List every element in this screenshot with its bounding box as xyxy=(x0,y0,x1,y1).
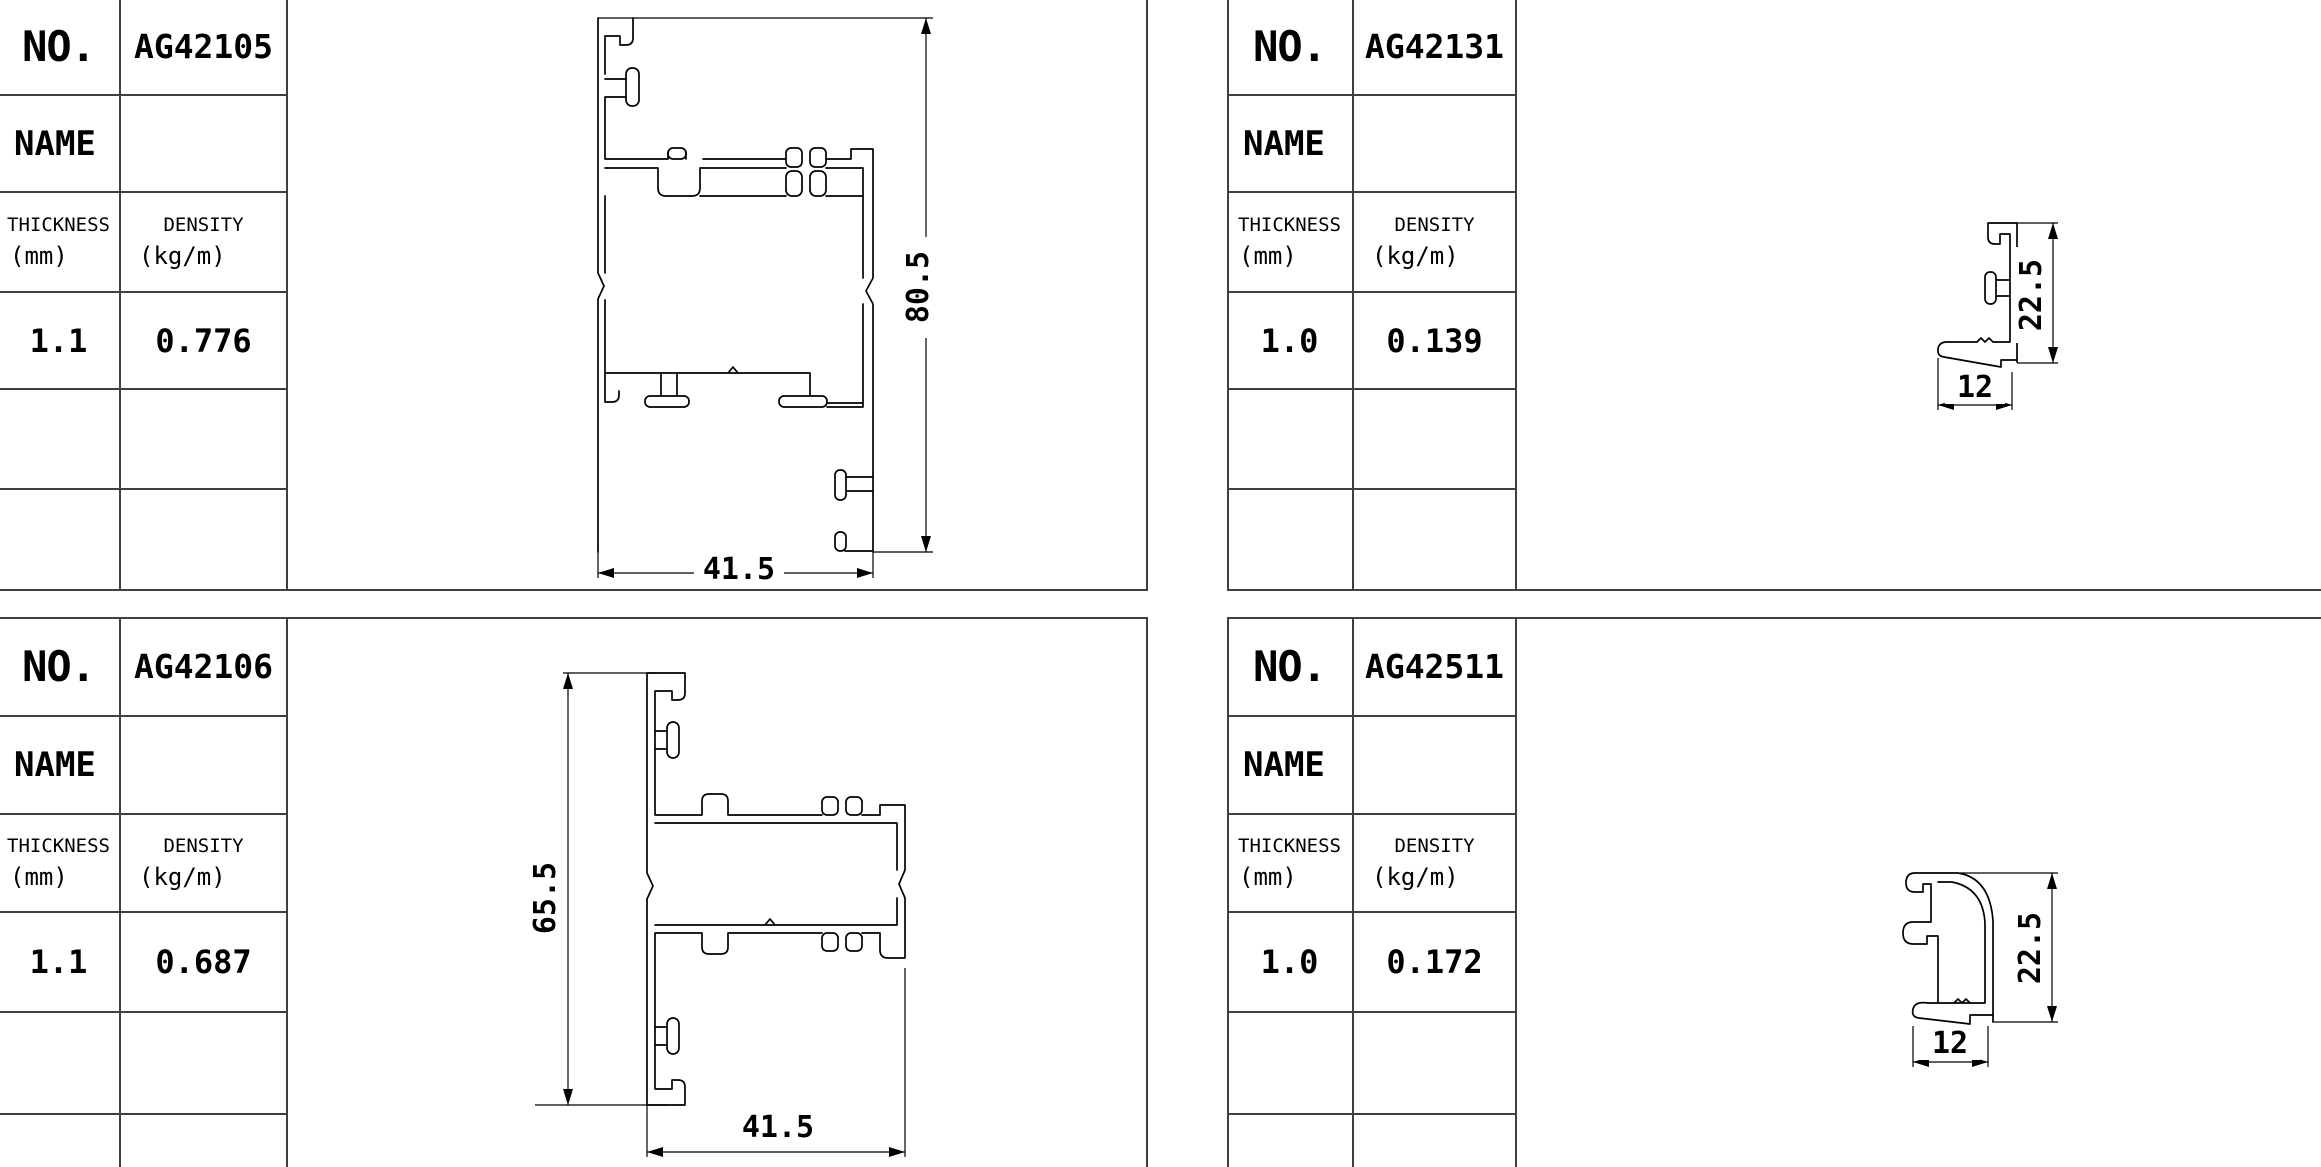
dim-width-ag42511: 12 xyxy=(1920,1028,1980,1060)
thickness-value: 1.1 xyxy=(0,913,121,1013)
table-row xyxy=(0,1115,288,1167)
thickness-unit: (mm) xyxy=(1227,242,1352,270)
thickness-unit: (mm) xyxy=(1227,863,1352,891)
empty-cell xyxy=(121,390,288,490)
profile-code: AG42106 xyxy=(121,617,288,717)
empty-cell xyxy=(121,1013,288,1115)
empty-cell xyxy=(121,490,288,591)
profile-hook xyxy=(626,68,639,106)
empty-cell xyxy=(1354,1115,1517,1167)
empty-cell xyxy=(1227,390,1354,490)
no-label: NO. xyxy=(0,0,121,96)
spec-table-ag42105: NO. AG42105 NAME THICKNESS (mm) DENSITY … xyxy=(0,0,288,591)
profile-hook xyxy=(835,532,846,551)
profile-code: AG42511 xyxy=(1354,617,1517,717)
table-row: THICKNESS (mm) DENSITY (kg/m) xyxy=(0,815,288,913)
name-label: NAME xyxy=(1227,717,1354,815)
table-row xyxy=(1227,1013,1517,1115)
table-row: NO. AG42511 xyxy=(1227,617,1517,717)
profile-drawing-ag42105 xyxy=(560,0,960,600)
dimension-arrow xyxy=(563,673,905,1157)
no-label: NO. xyxy=(0,617,121,717)
table-row: 1.1 0.776 xyxy=(0,293,288,390)
density-header: DENSITY (kg/m) xyxy=(1354,815,1517,913)
profile-hook xyxy=(786,148,802,167)
empty-cell xyxy=(1354,490,1517,591)
no-label: NO. xyxy=(1227,617,1354,717)
table-row: NAME xyxy=(1227,96,1517,193)
table-row: NO. AG42131 xyxy=(1227,0,1517,96)
profile-catalog-sheet: NO. AG42105 NAME THICKNESS (mm) DENSITY … xyxy=(0,0,2321,1167)
dim-height-ag42106: 65.5 xyxy=(530,850,562,946)
thickness-label: THICKNESS xyxy=(1227,214,1352,236)
empty-cell xyxy=(0,390,121,490)
empty-cell xyxy=(1227,1115,1354,1167)
table-row: 1.0 0.172 xyxy=(1227,913,1517,1013)
density-label: DENSITY xyxy=(121,835,286,857)
profile-code: AG42105 xyxy=(121,0,288,96)
profile-hook xyxy=(667,722,679,758)
thickness-label: THICKNESS xyxy=(0,835,119,857)
name-label: NAME xyxy=(1227,96,1354,193)
dim-width-ag42105: 41.5 xyxy=(694,554,784,586)
profile-hook xyxy=(667,1018,679,1054)
profile-outline xyxy=(1938,223,2017,367)
name-label: NAME xyxy=(0,96,121,193)
profile-hook xyxy=(835,470,846,500)
table-row: NO. AG42105 xyxy=(0,0,288,96)
density-unit: (kg/m) xyxy=(1354,242,1515,270)
table-row: THICKNESS (mm) DENSITY (kg/m) xyxy=(0,193,288,293)
thickness-label: THICKNESS xyxy=(0,214,119,236)
name-label: NAME xyxy=(0,717,121,815)
density-value: 0.687 xyxy=(121,913,288,1013)
empty-cell xyxy=(121,1115,288,1167)
thickness-unit: (mm) xyxy=(0,863,119,891)
thickness-label: THICKNESS xyxy=(1227,835,1352,857)
empty-cell xyxy=(1354,1013,1517,1115)
thickness-header: THICKNESS (mm) xyxy=(1227,193,1354,293)
empty-cell xyxy=(1227,1013,1354,1115)
name-value xyxy=(1354,717,1517,815)
dimension-lines xyxy=(535,673,905,1157)
density-header: DENSITY (kg/m) xyxy=(121,815,288,913)
profile-hook xyxy=(810,148,826,167)
empty-cell xyxy=(0,1115,121,1167)
profile-hook xyxy=(668,148,686,159)
dim-width-ag42131: 12 xyxy=(1945,372,2005,404)
table-row xyxy=(1227,390,1517,490)
empty-cell xyxy=(0,490,121,591)
table-row: THICKNESS (mm) DENSITY (kg/m) xyxy=(1227,815,1517,913)
table-row: THICKNESS (mm) DENSITY (kg/m) xyxy=(1227,193,1517,293)
profile-hook xyxy=(846,933,862,951)
table-row: NAME xyxy=(0,96,288,193)
thickness-value: 1.0 xyxy=(1227,293,1354,390)
profile-hook xyxy=(779,396,827,407)
density-label: DENSITY xyxy=(1354,214,1515,236)
table-row: 1.0 0.139 xyxy=(1227,293,1517,390)
table-row: NO. AG42106 xyxy=(0,617,288,717)
density-value: 0.172 xyxy=(1354,913,1517,1013)
density-label: DENSITY xyxy=(1354,835,1515,857)
empty-cell xyxy=(0,1013,121,1115)
density-unit: (kg/m) xyxy=(121,863,286,891)
table-row: NAME xyxy=(0,717,288,815)
density-unit: (kg/m) xyxy=(1354,863,1515,891)
profile-hook xyxy=(822,797,838,815)
density-header: DENSITY (kg/m) xyxy=(1354,193,1517,293)
dim-height-ag42511: 22.5 xyxy=(2015,900,2047,996)
thickness-unit: (mm) xyxy=(0,242,119,270)
no-label: NO. xyxy=(1227,0,1354,96)
thickness-header: THICKNESS (mm) xyxy=(0,193,121,293)
profile-hook xyxy=(810,171,826,196)
profile-hook xyxy=(1985,272,1996,304)
name-value xyxy=(121,96,288,193)
thickness-header: THICKNESS (mm) xyxy=(0,815,121,913)
table-row xyxy=(0,490,288,591)
name-value xyxy=(121,717,288,815)
profile-hook xyxy=(822,933,838,951)
profile-hook xyxy=(786,171,802,196)
density-header: DENSITY (kg/m) xyxy=(121,193,288,293)
profile-hook xyxy=(645,396,689,407)
density-label: DENSITY xyxy=(121,214,286,236)
name-value xyxy=(1354,96,1517,193)
empty-cell xyxy=(1354,390,1517,490)
density-value: 0.139 xyxy=(1354,293,1517,390)
table-row: NAME xyxy=(1227,717,1517,815)
table-row xyxy=(0,390,288,490)
thickness-header: THICKNESS (mm) xyxy=(1227,815,1354,913)
dimension-lines xyxy=(598,18,933,578)
thickness-value: 1.0 xyxy=(1227,913,1354,1013)
profile-outline xyxy=(1903,873,1993,1024)
table-row xyxy=(1227,490,1517,591)
spec-table-ag42511: NO. AG42511 NAME THICKNESS (mm) DENSITY … xyxy=(1227,617,1517,1167)
dim-height-ag42105: 80.5 xyxy=(903,239,935,335)
profile-drawing-ag42106 xyxy=(520,640,940,1167)
dimension-arrow xyxy=(598,18,931,578)
profile-hook xyxy=(846,797,862,815)
table-row xyxy=(0,1013,288,1115)
table-row xyxy=(1227,1115,1517,1167)
density-value: 0.776 xyxy=(121,293,288,390)
empty-cell xyxy=(1227,490,1354,591)
spec-table-ag42106: NO. AG42106 NAME THICKNESS (mm) DENSITY … xyxy=(0,617,288,1167)
thickness-value: 1.1 xyxy=(0,293,121,390)
profile-outline xyxy=(647,673,905,1105)
profile-code: AG42131 xyxy=(1354,0,1517,96)
density-unit: (kg/m) xyxy=(121,242,286,270)
dim-height-ag42131: 22.5 xyxy=(2016,247,2048,343)
dim-width-ag42106: 41.5 xyxy=(733,1112,823,1144)
table-row: 1.1 0.687 xyxy=(0,913,288,1013)
spec-table-ag42131: NO. AG42131 NAME THICKNESS (mm) DENSITY … xyxy=(1227,0,1517,591)
